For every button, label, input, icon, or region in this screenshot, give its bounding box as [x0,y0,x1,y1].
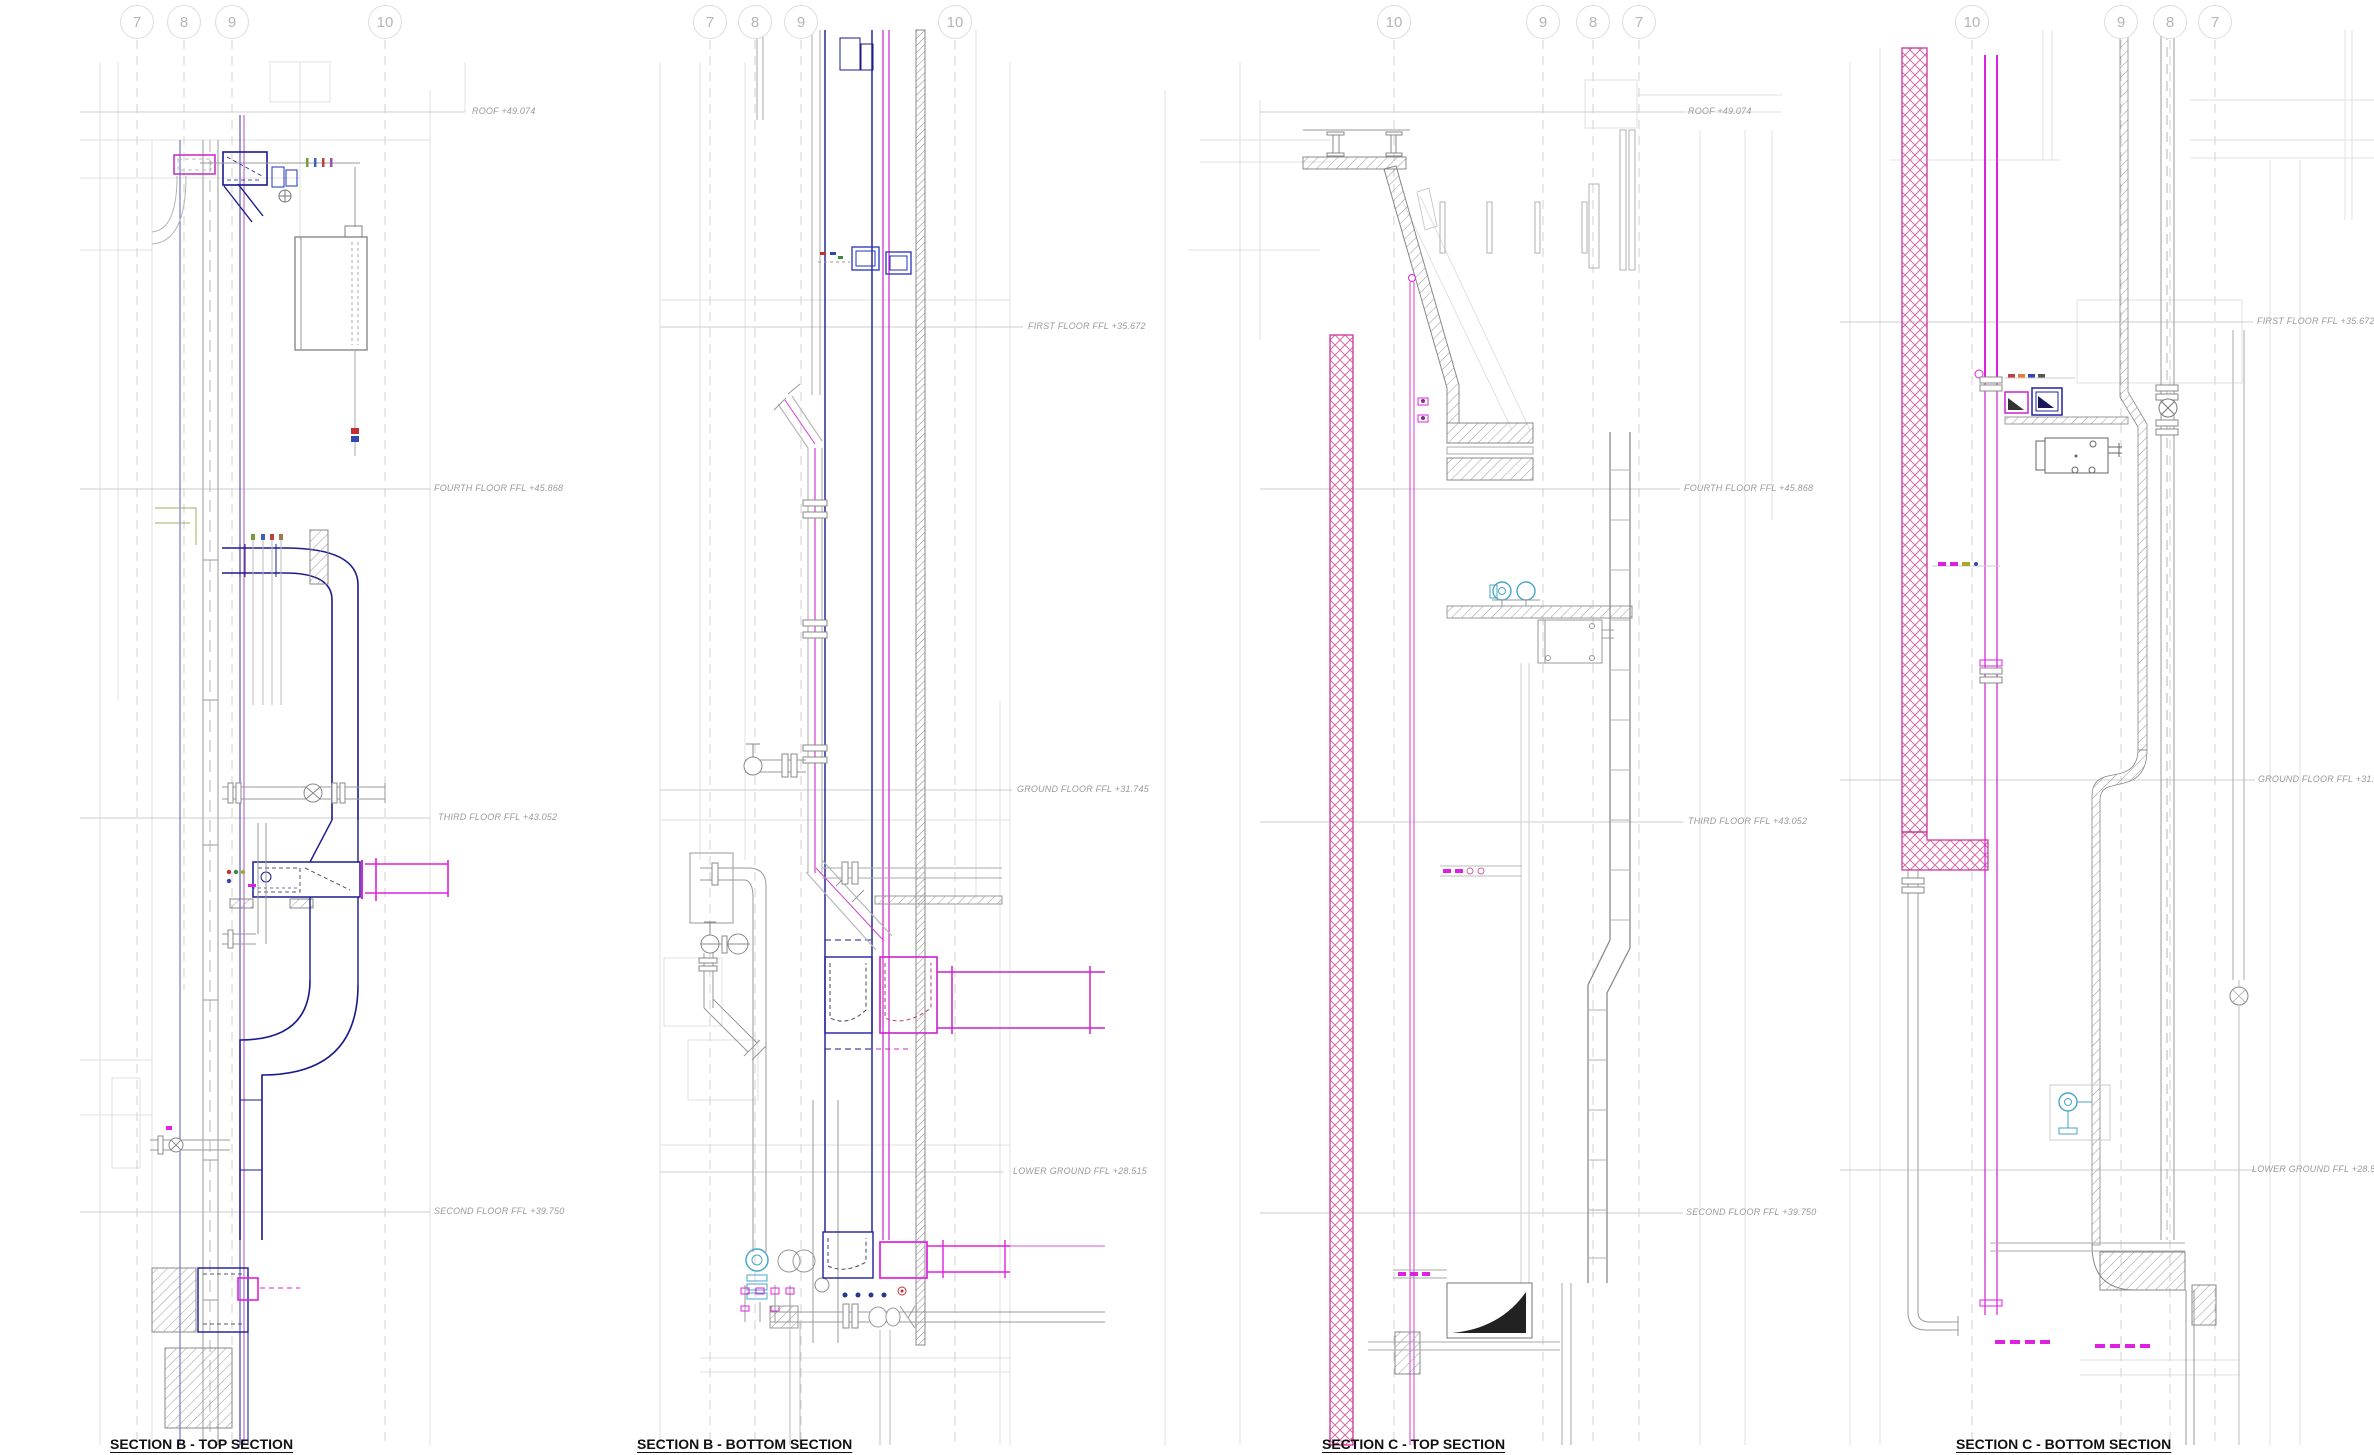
grid-bubble: 10 [368,5,402,39]
grid-bubble: 9 [215,5,249,39]
grid-bubble: 7 [120,5,154,39]
section-drawings-artwork [0,0,2374,1455]
level-label: FIRST FLOOR FFL +35.672 [1028,321,1146,331]
level-label: FOURTH FLOOR FFL +45.868 [434,483,563,493]
level-label: SECOND FLOOR FFL +39.750 [434,1206,564,1216]
level-label: ROOF +49.074 [472,106,536,116]
level-label: FIRST FLOOR FFL +35.672 [2257,316,2374,326]
section-b-top-artwork [80,40,465,1445]
section-title: SECTION B - TOP SECTION [110,1436,293,1452]
grid-bubble: 7 [693,5,727,39]
section-c-bottom-artwork [1840,30,2374,1445]
section-title: SECTION B - BOTTOM SECTION [637,1436,852,1452]
grid-bubble: 10 [938,5,972,39]
grid-bubble: 9 [784,5,818,39]
grid-bubble: 10 [1377,5,1411,39]
grid-bubble: 8 [167,5,201,39]
level-label: THIRD FLOOR FFL +43.052 [438,812,557,822]
grid-bubble: 9 [1526,5,1560,39]
grid-bubble: 9 [2104,5,2138,39]
level-label: THIRD FLOOR FFL +43.052 [1688,816,1807,826]
grid-bubble: 8 [1576,5,1610,39]
section-title: SECTION C - BOTTOM SECTION [1956,1436,2171,1452]
grid-bubble: 8 [2153,5,2187,39]
level-label: SECOND FLOOR FFL +39.750 [1686,1207,1816,1217]
level-label: ROOF +49.074 [1688,106,1752,116]
level-label: LOWER GROUND FFL +28.515 [2252,1164,2374,1174]
level-label: GROUND FLOOR FFL +31.745 [2258,774,2374,784]
grid-bubble: 8 [738,5,772,39]
section-c-top-artwork [1188,40,1782,1445]
section-b-bottom-artwork [660,30,1165,1445]
level-label: GROUND FLOOR FFL +31.745 [1017,784,1149,794]
level-label: FOURTH FLOOR FFL +45.868 [1684,483,1813,493]
grid-bubble: 10 [1955,5,1989,39]
grid-bubble: 7 [1622,5,1656,39]
level-label: LOWER GROUND FFL +28.515 [1013,1166,1147,1176]
grid-bubble: 7 [2198,5,2232,39]
section-title: SECTION C - TOP SECTION [1322,1436,1505,1452]
drawing-sheet: 7 8 9 10 7 8 9 10 10 9 8 7 10 9 8 7 ROOF… [0,0,2374,1455]
